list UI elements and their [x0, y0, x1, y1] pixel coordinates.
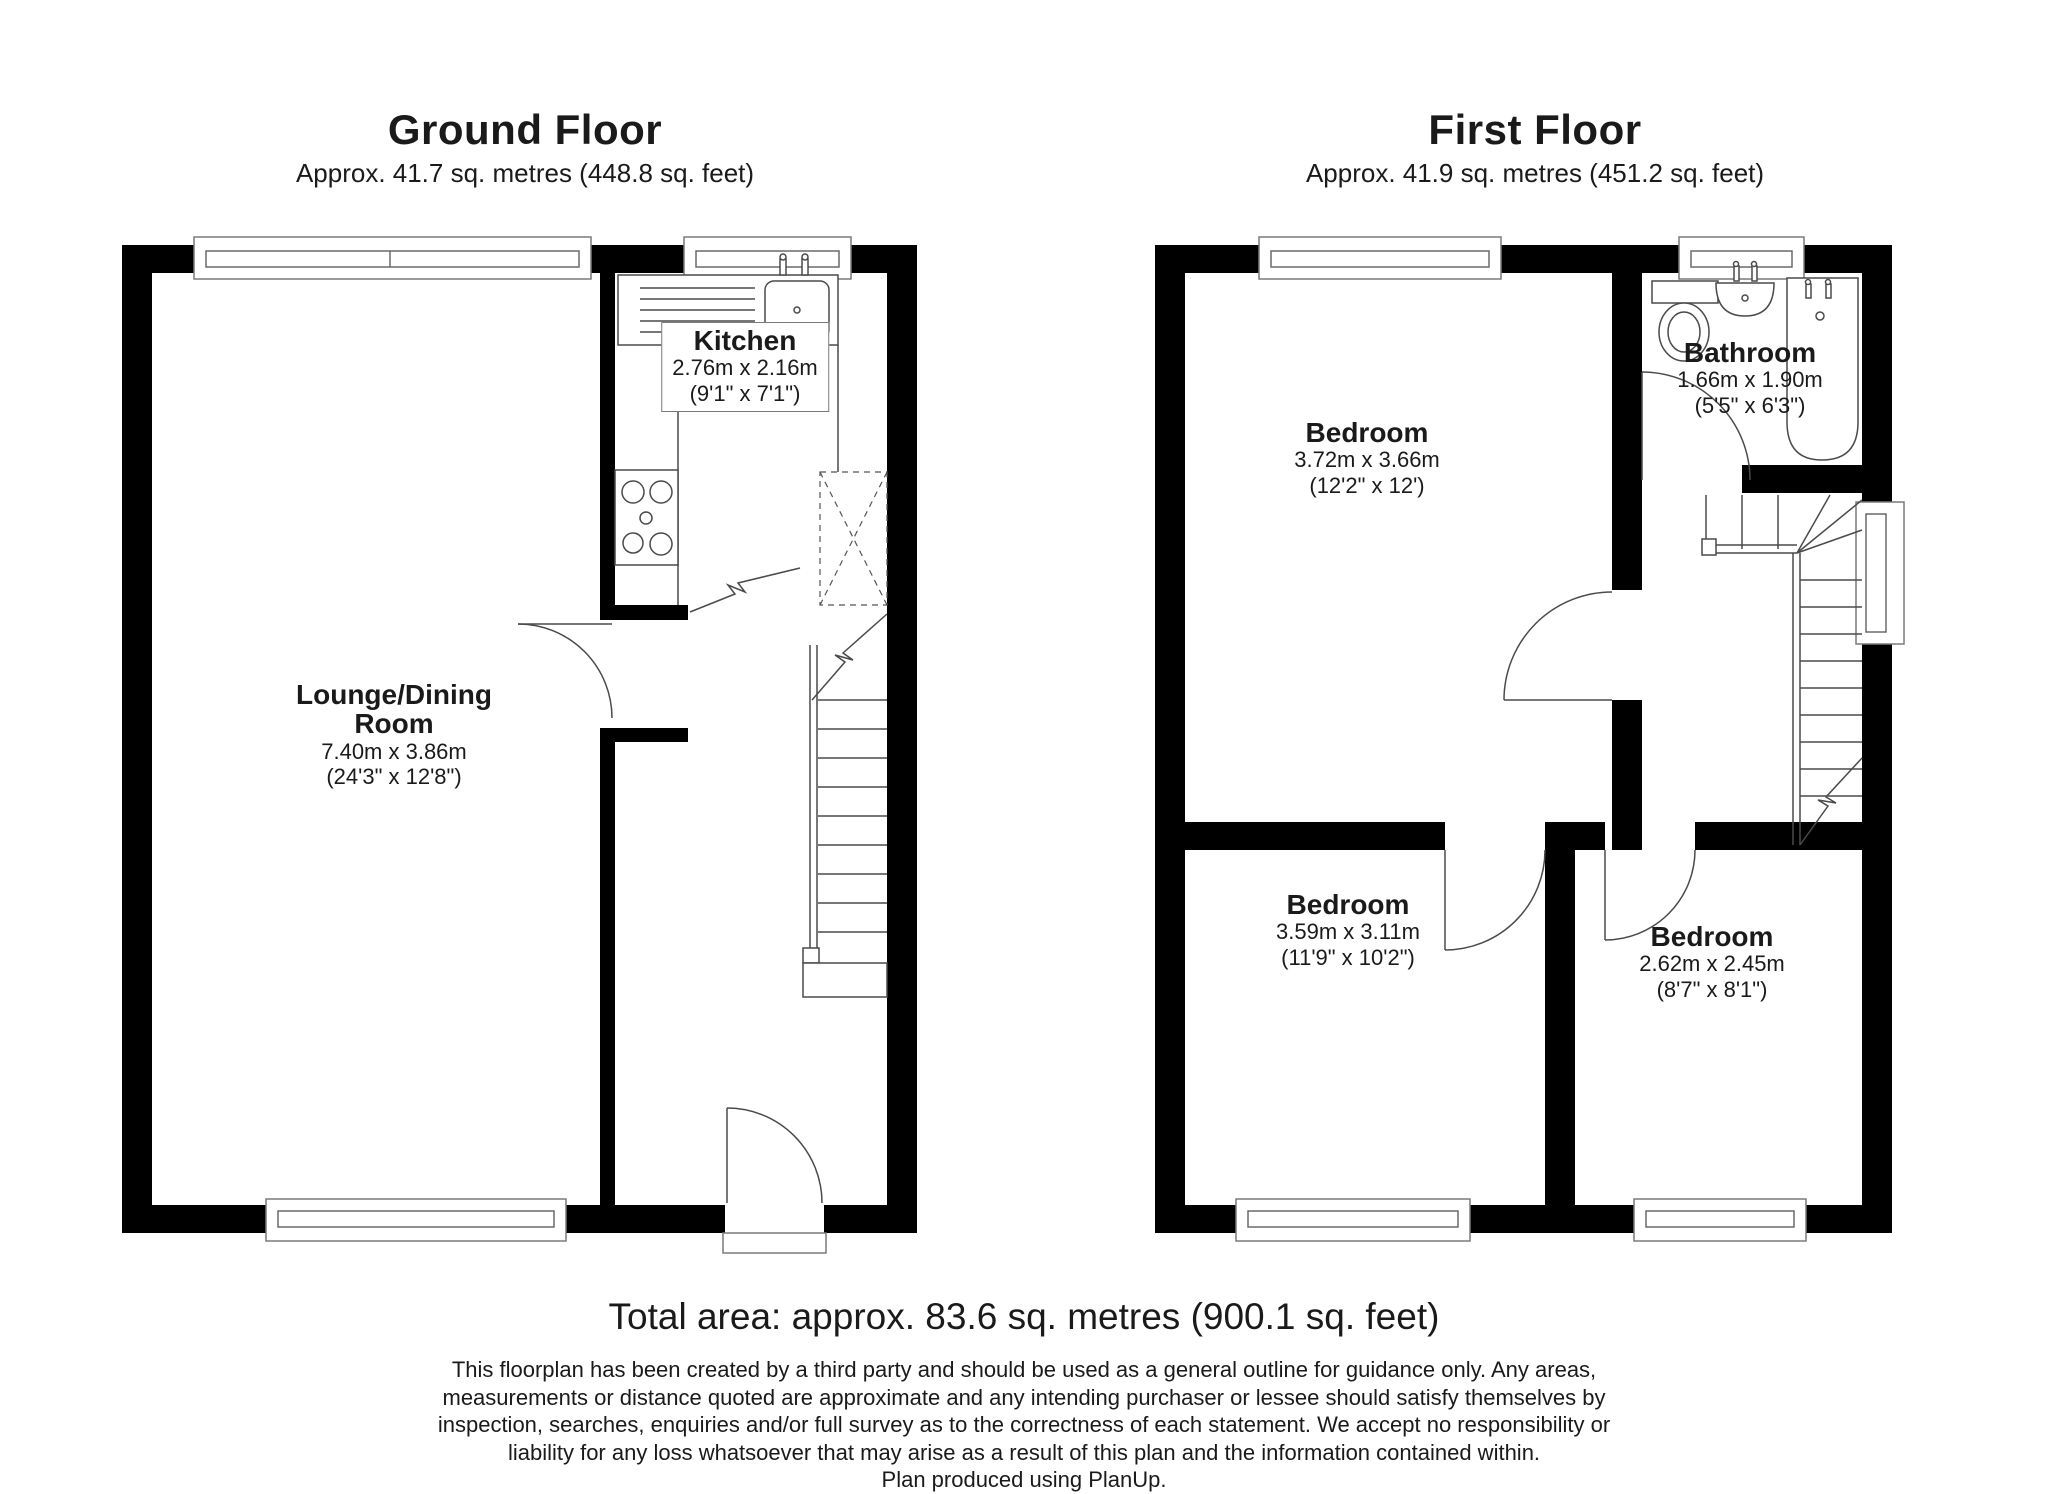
bedroom-right-name: Bedroom	[1639, 922, 1785, 951]
total-area-text: Total area: approx. 83.6 sq. metres (900…	[609, 1296, 1440, 1338]
bedroom-main-dim-imperial: (12'2" x 12')	[1294, 473, 1440, 499]
bedroom-right-dim-imperial: (8'7" x 8'1")	[1639, 977, 1785, 1003]
gf-kitchen-hob	[615, 470, 678, 565]
lounge-dim-metric: 7.40m x 3.86m	[296, 739, 492, 765]
disclaimer: This floorplan has been created by a thi…	[438, 1356, 1610, 1494]
kitchen-name: Kitchen	[672, 326, 818, 355]
gf-stairs	[690, 568, 887, 997]
bedroom-main-dim-metric: 3.72m x 3.66m	[1294, 447, 1440, 473]
ff-stairs	[1702, 495, 1862, 845]
bedroom-main-label: Bedroom 3.72m x 3.66m (12'2" x 12')	[1294, 418, 1440, 498]
kitchen-dim-imperial: (9'1" x 7'1")	[672, 381, 818, 407]
bedroom-left-label: Bedroom 3.59m x 3.11m (11'9" x 10'2")	[1276, 890, 1420, 970]
disclaimer-line: liability for any loss whatsoever that m…	[438, 1439, 1610, 1467]
disclaimer-line: measurements or distance quoted are appr…	[438, 1384, 1610, 1412]
kitchen-label: Kitchen 2.76m x 2.16m (9'1" x 7'1")	[661, 322, 829, 412]
floorplan-page: { "ground_floor": { "title": "Ground Flo…	[0, 0, 2048, 1489]
kitchen-dim-metric: 2.76m x 2.16m	[672, 355, 818, 381]
first-floor-title: First Floor	[1428, 106, 1641, 154]
lounge-name-line2: Room	[296, 709, 492, 738]
ground-floor-subtitle: Approx. 41.7 sq. metres (448.8 sq. feet)	[296, 158, 754, 189]
gf-understair-cupboard	[820, 472, 887, 605]
disclaimer-line: inspection, searches, enquiries and/or f…	[438, 1411, 1610, 1439]
bedroom-left-name: Bedroom	[1276, 890, 1420, 919]
planup-credit: Plan produced using PlanUp.	[438, 1466, 1610, 1494]
first-floor-subtitle: Approx. 41.9 sq. metres (451.2 sq. feet)	[1306, 158, 1764, 189]
lounge-dining-label: Lounge/Dining Room 7.40m x 3.86m (24'3" …	[296, 680, 492, 790]
bedroom-right-dim-metric: 2.62m x 2.45m	[1639, 951, 1785, 977]
ground-floor-title: Ground Floor	[388, 106, 662, 154]
bathroom-dim-imperial: (5'5" x 6'3")	[1677, 393, 1823, 419]
lounge-dim-imperial: (24'3" x 12'8")	[296, 764, 492, 790]
bathroom-label: Bathroom 1.66m x 1.90m (5'5" x 6'3")	[1677, 338, 1823, 418]
lounge-name-line1: Lounge/Dining	[296, 680, 492, 709]
bathroom-dim-metric: 1.66m x 1.90m	[1677, 367, 1823, 393]
gf-front-door	[723, 1108, 826, 1253]
bedroom-right-label: Bedroom 2.62m x 2.45m (8'7" x 8'1")	[1639, 922, 1785, 1002]
ff-doors	[1445, 372, 1750, 950]
disclaimer-line: This floorplan has been created by a thi…	[438, 1356, 1610, 1384]
gf-lounge-door	[518, 624, 612, 718]
bedroom-left-dim-imperial: (11'9" x 10'2")	[1276, 945, 1420, 971]
bedroom-left-dim-metric: 3.59m x 3.11m	[1276, 919, 1420, 945]
bedroom-main-name: Bedroom	[1294, 418, 1440, 447]
bathroom-name: Bathroom	[1677, 338, 1823, 367]
